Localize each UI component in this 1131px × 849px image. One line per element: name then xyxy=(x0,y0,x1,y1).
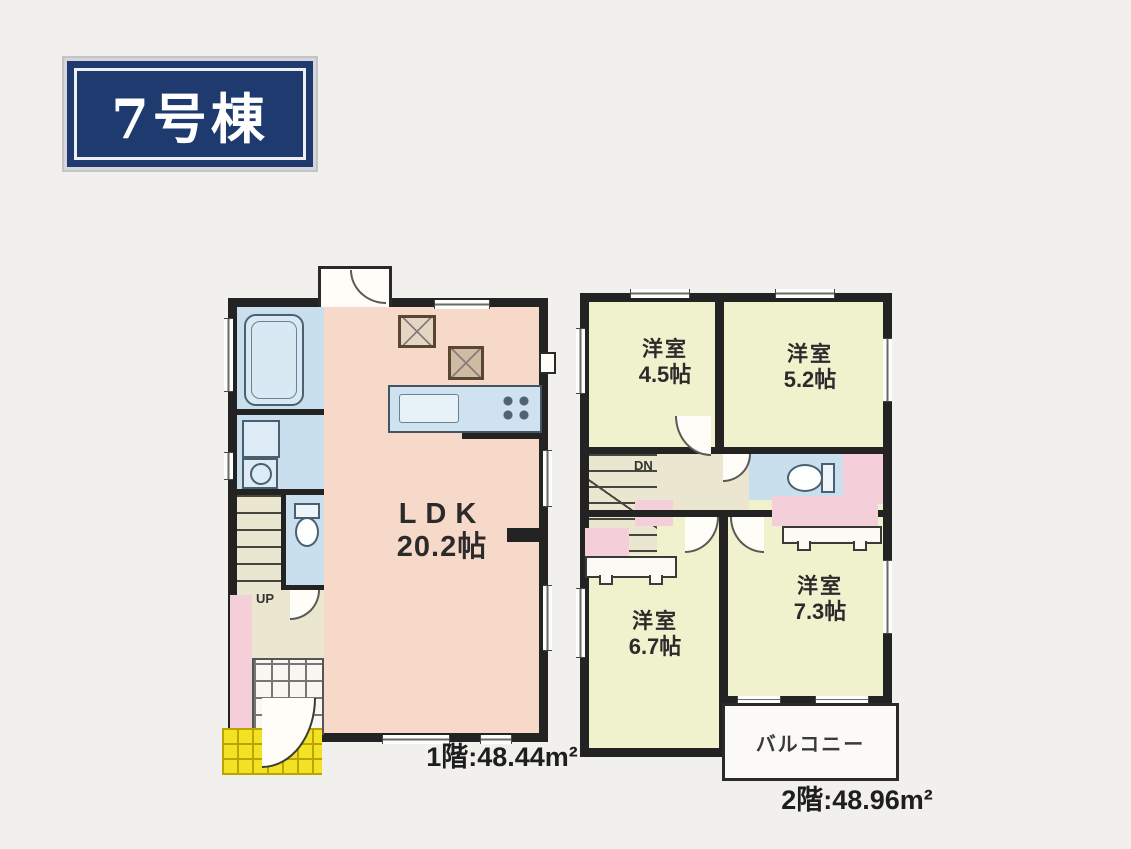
room-bathroom xyxy=(237,307,324,409)
stove-burners-icon xyxy=(498,392,534,423)
ldk-name: LDK xyxy=(370,498,514,531)
toilet-icon xyxy=(821,463,835,493)
window-icon xyxy=(576,328,585,394)
label-bedroom-45: 洋室 4.5帖 xyxy=(620,338,710,387)
stairs-up-label: UP xyxy=(256,591,274,606)
window-icon xyxy=(630,289,690,298)
window-icon xyxy=(737,696,781,703)
window-icon xyxy=(775,289,835,298)
window-icon xyxy=(576,588,585,658)
label-ldk: LDK 20.2帖 xyxy=(370,498,514,565)
vent-box-icon xyxy=(539,352,556,374)
building-label-box: 7号棟 xyxy=(64,58,316,170)
window-icon xyxy=(543,585,552,651)
building-label: 7号棟 xyxy=(67,61,313,167)
sink-basin-icon xyxy=(242,458,278,489)
window-icon xyxy=(224,452,233,480)
room-washroom xyxy=(237,415,324,489)
closet-hanger-icon xyxy=(585,556,677,578)
floorplan-canvas: 7号棟 UP xyxy=(0,0,1131,849)
kitchen-sink-icon xyxy=(399,394,459,423)
entry-closet xyxy=(230,595,252,735)
kitchen-counter xyxy=(388,385,542,433)
label-bedroom-73: 洋室 7.3帖 xyxy=(770,575,870,624)
floor2-plan: 洋室 4.5帖 洋室 5.2帖 DN 洋室 6.7帖 xyxy=(575,288,920,818)
floor1-plan: UP LDK 20.2帖 xyxy=(222,260,567,780)
window-icon xyxy=(883,560,892,634)
closet-hanger-icon xyxy=(782,526,882,544)
cupboard-icon xyxy=(448,346,484,380)
ldk-size: 20.2帖 xyxy=(370,531,514,564)
washing-machine-icon xyxy=(242,420,280,458)
floor2-area-label: 2階:48.96m² xyxy=(752,778,962,817)
refrigerator-icon xyxy=(398,315,436,348)
closet xyxy=(585,528,629,556)
window-icon xyxy=(543,450,552,507)
room-toilet-1f xyxy=(286,495,324,585)
balcony-label: バルコニー xyxy=(756,728,866,757)
wall xyxy=(715,302,724,454)
wall xyxy=(589,447,883,454)
balcony: バルコニー xyxy=(722,703,899,781)
floor1-area-label: 1階:48.44m² xyxy=(392,735,612,774)
window-icon xyxy=(224,318,233,392)
toilet-bowl-icon xyxy=(295,517,319,547)
closet xyxy=(772,496,878,526)
window-icon xyxy=(434,300,490,309)
toilet-bowl-icon xyxy=(787,464,823,492)
label-bedroom-52: 洋室 5.2帖 xyxy=(765,343,855,392)
stairs-down-label: DN xyxy=(634,458,653,473)
window-icon xyxy=(883,338,892,402)
window-icon xyxy=(815,696,869,703)
room-toilet-2f xyxy=(749,454,843,500)
label-bedroom-67: 洋室 6.7帖 xyxy=(610,610,700,659)
bathtub-icon xyxy=(244,314,304,406)
